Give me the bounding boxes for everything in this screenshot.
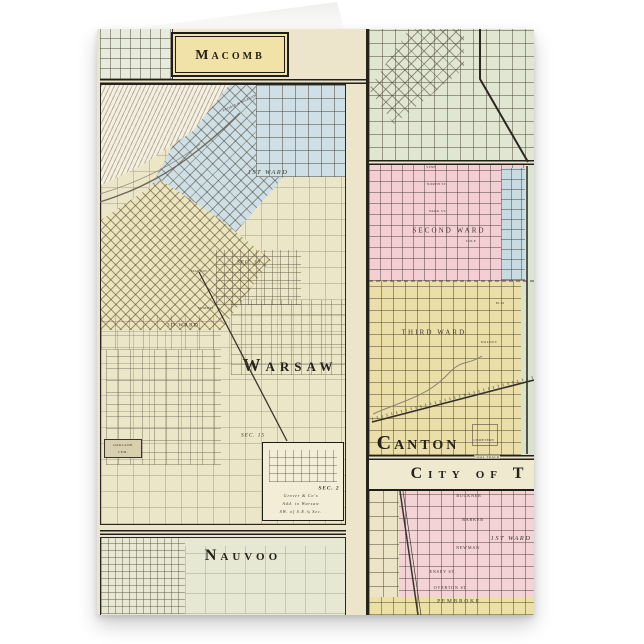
product-photo: Macomb 1st Ward Peoria & Warsaw Sec. 10 … bbox=[0, 0, 644, 644]
map-lines-overlay bbox=[97, 29, 534, 615]
card-back-fold bbox=[130, 2, 346, 30]
greeting-card: Macomb 1st Ward Peoria & Warsaw Sec. 10 … bbox=[97, 29, 534, 615]
